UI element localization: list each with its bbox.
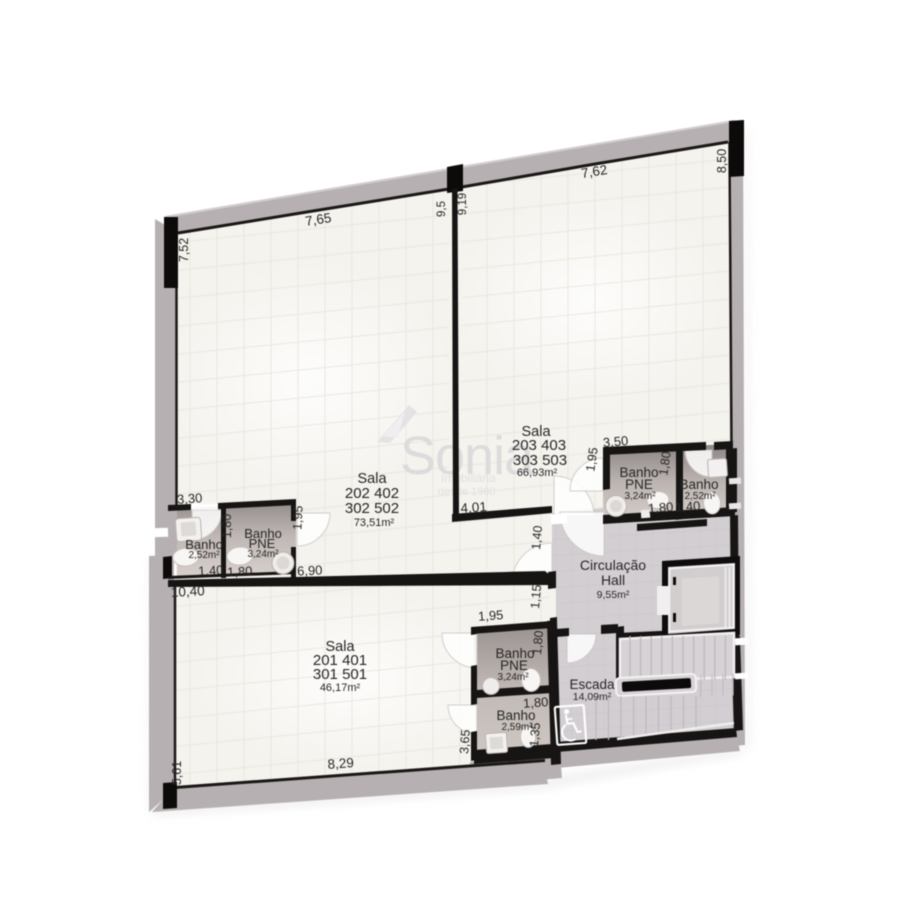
svg-text:PNE: PNE: [625, 477, 653, 492]
svg-text:Banho: Banho: [496, 708, 535, 723]
svg-text:3,65: 3,65: [457, 729, 473, 754]
svg-text:5,61: 5,61: [170, 761, 184, 785]
svg-text:1,40: 1,40: [529, 525, 545, 551]
svg-text:10,40: 10,40: [170, 583, 205, 600]
svg-text:2,52m²: 2,52m²: [188, 550, 220, 561]
svg-text:Escada: Escada: [569, 677, 615, 692]
svg-text:8,50: 8,50: [715, 149, 729, 173]
svg-text:9,19: 9,19: [457, 193, 469, 215]
svg-text:1,15: 1,15: [528, 584, 544, 610]
svg-text:73,51m²: 73,51m²: [354, 517, 395, 529]
svg-text:66,93m²: 66,93m²: [517, 467, 558, 479]
svg-text:9,55m²: 9,55m²: [597, 589, 630, 601]
svg-text:4,01: 4,01: [460, 499, 487, 516]
svg-text:1,80: 1,80: [220, 514, 234, 538]
svg-text:3,24m²: 3,24m²: [624, 491, 656, 502]
svg-text:46,17m²: 46,17m²: [320, 682, 361, 694]
svg-text:1,95: 1,95: [290, 505, 305, 530]
svg-text:9,5: 9,5: [436, 201, 448, 217]
svg-text:8,29: 8,29: [327, 755, 354, 772]
svg-text:1,95: 1,95: [478, 607, 504, 624]
svg-text:PNE: PNE: [500, 658, 528, 673]
svg-text:302 502: 302 502: [345, 500, 399, 517]
svg-text:3,50: 3,50: [602, 433, 629, 450]
svg-text:301 501: 301 501: [313, 666, 367, 683]
svg-text:14,09m²: 14,09m²: [573, 691, 612, 703]
svg-text:1,40: 1,40: [198, 562, 224, 578]
svg-text:1,80: 1,80: [227, 563, 253, 579]
svg-text:Banho: Banho: [679, 477, 718, 492]
svg-text:desde 1980: desde 1980: [438, 486, 496, 498]
svg-text:7,52: 7,52: [177, 238, 191, 262]
svg-text:3,24m²: 3,24m²: [497, 672, 529, 683]
svg-text:3,24m²: 3,24m²: [247, 549, 279, 560]
svg-text:Hall: Hall: [601, 572, 625, 588]
svg-text:Imobiliária: Imobiliária: [441, 471, 496, 485]
svg-text:Circulação: Circulação: [580, 557, 646, 573]
svg-text:3,30: 3,30: [177, 490, 203, 507]
svg-text:2,52m²: 2,52m²: [684, 491, 716, 502]
svg-text:2,59m²: 2,59m²: [501, 722, 533, 733]
svg-text:6,90: 6,90: [297, 562, 323, 578]
